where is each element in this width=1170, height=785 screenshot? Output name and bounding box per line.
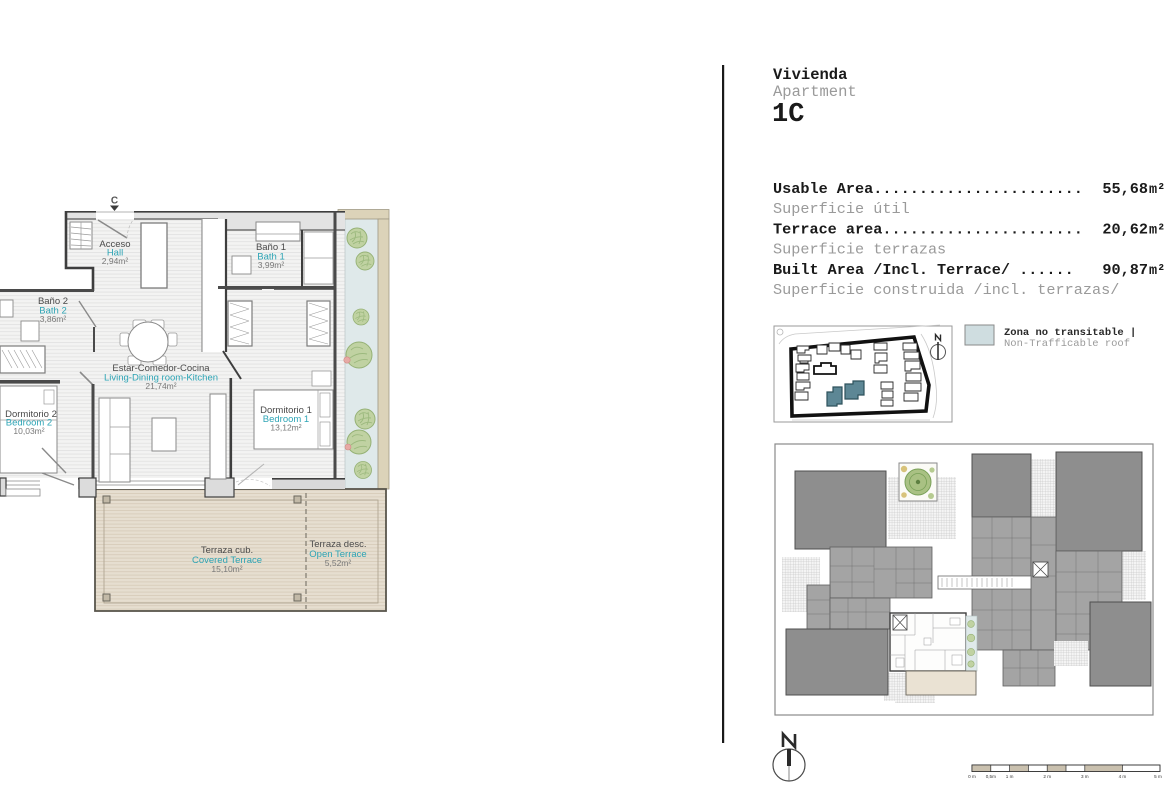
svg-text:0,5m: 0,5m (986, 774, 996, 779)
svg-text:m²: m² (1149, 264, 1165, 279)
svg-text:3,86m²: 3,86m² (40, 314, 67, 324)
svg-text:2 m: 2 m (1043, 774, 1051, 779)
svg-text:C: C (111, 196, 118, 207)
svg-text:20,62: 20,62 (1102, 221, 1148, 239)
svg-text:Non-Trafficable roof: Non-Trafficable roof (1004, 338, 1130, 350)
svg-text:0 m: 0 m (968, 774, 976, 779)
svg-text:Terrace area..................: Terrace area...................... (773, 221, 1083, 239)
svg-text:4 m: 4 m (1119, 774, 1127, 779)
svg-text:Built Area /Incl. Terrace/ ...: Built Area /Incl. Terrace/ ...... (773, 261, 1074, 279)
svg-text:13,12m²: 13,12m² (270, 423, 301, 433)
svg-text:15,10m²: 15,10m² (211, 564, 242, 574)
svg-text:m²: m² (1149, 183, 1165, 198)
svg-text:Superficie útil: Superficie útil (773, 200, 910, 218)
svg-text:55,68: 55,68 (1102, 180, 1148, 198)
svg-text:1 m: 1 m (1006, 774, 1014, 779)
svg-text:1C: 1C (772, 100, 804, 130)
svg-text:Apartment: Apartment (773, 83, 857, 101)
svg-text:5,52m²: 5,52m² (325, 558, 352, 568)
svg-text:10,03m²: 10,03m² (13, 426, 44, 436)
svg-text:5 m: 5 m (1154, 774, 1162, 779)
svg-text:Superficie terrazas: Superficie terrazas (773, 241, 946, 259)
svg-text:21,74m²: 21,74m² (145, 381, 176, 391)
svg-text:3 m: 3 m (1081, 774, 1089, 779)
svg-text:m²: m² (1149, 224, 1165, 239)
svg-text:Usable Area...................: Usable Area....................... (773, 180, 1083, 198)
svg-text:Vivienda: Vivienda (773, 66, 847, 84)
svg-text:3,99m²: 3,99m² (258, 260, 285, 270)
svg-text:2,94m²: 2,94m² (102, 256, 129, 266)
svg-text:90,87: 90,87 (1102, 261, 1148, 279)
svg-text:Superficie construida /incl. t: Superficie construida /incl. terrazas/ (773, 281, 1119, 299)
